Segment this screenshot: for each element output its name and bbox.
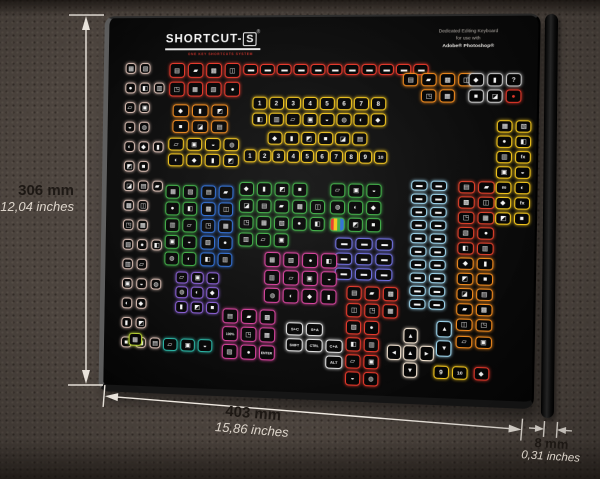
keyboard-key: ▰ [478,181,495,194]
keyboard-key: ◒ [125,122,136,133]
keyboard-key: ▥ [238,232,253,246]
keyboard-key: ◩ [495,212,511,225]
keyboard-key: ◐ [514,182,530,195]
keyboard-key: ◳ [169,82,185,97]
keyboard-key: 5 [301,150,314,163]
keyboard-key: ▥ [165,218,180,232]
keyboard-key: ▣ [180,338,195,351]
keyboard-key: ◳ [458,212,475,225]
keyboard-key: ▮ [487,73,503,86]
keyboard-key: ▰ [152,181,163,192]
keyboard-key: S+A [306,323,323,337]
keyboard-key: ◩ [136,317,147,328]
keyboard-key: ▧ [206,82,222,97]
keyboard-key: S+C [286,322,303,336]
keyboard-key: ◩ [223,154,239,167]
keyboard-key: ◳ [241,327,257,342]
keyboard-key: ▩ [458,196,475,209]
keyboard-key: ◆ [139,141,150,152]
keyboard-key: ▬ [409,299,426,310]
keyboard-key: ◆ [268,132,283,145]
keyboard-key: ▱ [286,113,301,126]
key-cluster-cyan-columns: ▬▬▬▬▬▬▬▬▬▬▬▬▬▬▬▬▬▬▬▬ [409,180,447,313]
keyboard-key: ▤ [257,199,272,213]
key-cluster-magenta-upper: ▦▧●◧▥▱▣◒◍◐◆▮ [264,252,337,308]
keyboard-key: C+A [325,339,342,353]
keyboard-key: ▩ [292,200,307,214]
keyboard-key: 3 [272,150,285,163]
keyboard-key: ▮ [121,317,132,328]
key-cluster-green-right: ▱▣◒◍◐◆◩■ [330,183,382,235]
keyboard-key: ● [125,83,136,94]
keyboard-key: ◐ [353,113,368,126]
keyboard-key: ▬ [310,64,325,75]
keyboard-key: ▰ [188,63,204,78]
description-line-2: for use with [431,35,507,39]
keyboard-key: ▤ [403,73,419,86]
keyboard-key: ◧ [346,337,361,352]
keyboard-key: ◒ [136,278,147,289]
keyboard-key: ◆ [371,113,386,126]
keyboard-key: ▲ [436,321,452,338]
keyboard-key: ▲ [403,328,418,344]
keyboard-key: ▦ [439,89,455,102]
brand-tagline: ONE KEY SHORTCUTS SYSTEM [188,52,237,56]
keyboard-key: ◒ [366,184,381,198]
keyboard-key: ▱ [330,183,345,197]
keyboard-key: ◫ [225,63,241,78]
keyboard-key: ▬ [411,180,428,190]
keyboard-key: ▬ [355,268,372,281]
keyboard-key: ◒ [198,339,213,352]
keyboard-key: ◍ [336,113,351,126]
key-cluster-lime-key: ▦ [129,333,143,349]
keyboard-key: ▣ [348,184,363,198]
keyboard-key: ◫ [346,303,361,318]
keyboard-key: ◆ [468,73,484,86]
keyboard-key: ◳ [123,219,134,230]
keyboard-key: 2 [269,97,284,110]
key-cluster-left-strip: ▦▧●◧▥▱▣◒◍◐◆▮◩■◪▤▰▩◫◳▦▧●◧▥▱▣◒◍◐◆▮◩■◪▤ [121,63,165,357]
keyboard-key: ▮ [257,182,272,196]
keyboard-key: ◪ [335,132,350,145]
keyboard-key: ▦ [382,304,397,319]
keyboard-key: ▬ [293,64,308,75]
key-cluster-top-gray-block: ◆▮?■◪● [468,73,522,106]
keyboard-key: ▣ [363,355,378,370]
keyboard-key: ▤ [476,288,493,301]
keyboard-key: ◪ [487,89,503,102]
keyboard-key: ◳ [476,319,493,332]
keyboard-key: ▬ [243,64,258,75]
keyboard-key: 8 [344,150,357,163]
keyboard-key: 7 [330,150,343,163]
product-dimension-diagram: SHORTCUT-S® ONE KEY SHORTCUTS SYSTEM Ded… [0,0,600,479]
keyboard-key: ▦ [259,327,275,342]
keyboard-key: ■ [514,213,530,226]
height-mm: 306 mm [0,183,74,200]
keyboard-key: 4 [303,97,318,110]
keyboard-key: ▤ [211,120,228,133]
key-cluster-right-red-column: ▤▰▩◫◳▦▧●◧▥ [457,181,495,258]
keyboard-key: ▧ [222,344,238,359]
keyboard-key: ● [224,82,240,97]
keyboard-key: ● [302,253,318,268]
keyboard-key: 4 [286,150,299,163]
key-cluster-teal-block: ▱▣◒ [163,338,212,355]
keyboard-key: ▰ [365,286,380,301]
keyboard-key: ◩ [191,301,204,313]
keyboard-key: ▬ [344,64,359,75]
key-cluster-magenta-lower: ▤▰▩100%◳▦▧●ENTER [222,308,276,363]
keyboard-key: ■ [468,89,484,102]
keyboard-key: 5 [320,97,335,110]
keyboard-key: ◒ [515,166,531,179]
keyboard-key: ◪ [239,199,254,213]
keyboard-key: 7 [354,97,369,110]
keyboard-key: ▦ [137,220,148,231]
keyboard-key: ◐ [182,252,197,266]
keyboard-key: ◪ [124,180,135,191]
key-cluster-menu-row: ▬▬▬▬▬▬▬▬▬▬▬ [243,64,429,78]
keyboard-key: ▲ [403,345,418,361]
keyboard-key: ● [218,236,233,250]
keyboard-key: ● [137,239,148,250]
keyboard-key: 6 [337,97,352,110]
key-cluster-yellow-file-block: ▱▣◒◍◐◆▮◩ [168,138,239,170]
keyboard-key: ▮ [284,132,299,145]
keyboard-key: ▦ [264,252,280,267]
keyboard-key: ▬ [379,64,394,75]
keyboard-key: ■ [138,161,149,172]
keyboard-key: ◆ [301,289,317,304]
keyboard-key: ▬ [355,253,372,265]
keyboard-key: ● [496,136,512,148]
keyboard-key: ▮ [205,154,221,167]
keyboard-key: ◆ [495,197,511,210]
keyboard-key: ◒ [345,371,360,386]
keyboard-key: ● [165,201,180,215]
key-cluster-green-main: ◆▮◩■◪▤▰▩◫◳▦▧●◧▥▱▣ [238,182,325,251]
keyboard-key: ▦ [126,63,137,74]
keyboard-key: CTRL [306,339,323,353]
keyboard-key: ◧ [252,113,267,126]
keyboard-key: ▬ [335,268,352,280]
keyboard-key: ◒ [182,235,197,249]
keyboard-key: ▬ [375,253,392,266]
keyboard-key: ► [419,346,434,362]
keyboard-key: ▬ [409,286,426,297]
keyboard-key: ▮ [320,289,336,304]
key-cluster-right-orange-column: ◆▮◩■◪▤▰▩◫◳ [456,257,494,335]
description-line-3: Adobe® Photoshop® [428,42,509,47]
keyboard-key: ▣ [302,271,318,286]
key-cluster-green-grid: ▦▧●◧▥▱▣◒◍◐ [164,185,197,269]
brand-wordmark: SHORTCUT-S® [166,29,261,50]
keyboard-key: ◳ [421,89,437,102]
keyboard-key: ◍ [330,200,345,214]
brand-s-box: S [243,32,256,46]
keyboard-key: ▱ [168,138,184,151]
keyboard-key: ▬ [410,233,427,243]
keyboard-key: fx [515,151,531,163]
keyboard-key: ◧ [515,136,531,148]
keyboard-key: ● [477,227,494,240]
keyboard-key: ▱ [456,336,473,349]
keyboard-key: ▣ [191,272,204,284]
keyboard-key: 3 [286,97,301,110]
keyboard-key: ◐ [191,287,204,299]
keyboard-key: ◧ [151,239,162,250]
keyboard-key: ▬ [430,220,447,230]
keyboard-key: ▬ [430,207,447,217]
keyboard-key: ▥ [364,338,379,353]
width-dimension-label: 403 mm 15,86 inches [179,400,326,443]
keyboard-key: ◍ [223,138,239,151]
height-dimension-label: 306 mm 12,04 inches [0,183,74,214]
keyboard-key: ◆ [173,104,190,117]
keyboard-key: ▦ [129,333,143,346]
keyboard-side-view [541,14,558,418]
keyboard-key: ▮ [175,301,188,313]
brand-text: SHORTCUT- [166,31,243,45]
keyboard-key: ▣ [139,102,150,113]
keyboard-key: ▤ [201,185,216,199]
key-layer: ▦▧●◧▥▱▣◒◍◐◆▮◩■◪▤▰▩◫◳▦▧●◧▥▱▣◒◍◐◆▮◩■◪▤▤▰▩◫… [109,16,538,19]
keyboard-key: ▮ [153,141,164,152]
keyboard-key: 6 [315,150,328,163]
keyboard-key: ▼ [436,340,452,357]
keyboard-key: ◧ [321,253,337,268]
keyboard-key: ▧ [346,320,361,335]
keyboard-key: ▧ [457,227,474,240]
keyboard-key: ▬ [375,269,392,282]
keyboard-key: ◪ [456,288,473,301]
keyboard-key: ▬ [430,194,447,204]
keyboard-key: ▤ [222,308,238,323]
description-line-1: Dedicated Editing Keyboard [431,28,507,32]
keyboard-key: ◍ [175,286,188,298]
keyboard-key: ◐ [348,201,363,215]
keyboard-key: ◩ [301,132,316,145]
keyboard-key: ◍ [151,279,162,290]
keyboard-key: ▣ [187,138,203,151]
keyboard-key: ▮ [192,104,209,117]
keyboard-key: ? [506,73,522,86]
keyboard-key: 9 [433,365,449,379]
keyboard-key: ▬ [429,286,446,297]
keyboard-key: ▱ [176,271,189,283]
keyboard-key: ▧ [140,63,151,74]
key-cluster-number-row-2: 12345678910 [244,149,387,167]
keyboard-key: ◆ [239,182,254,196]
keyboard-key: ▬ [429,260,446,271]
brand-logo: SHORTCUT-S® ONE KEY SHORTCUTS SYSTEM [154,29,271,61]
keyboard-key: ◆ [136,298,147,309]
key-cluster-purple-block: ▱▣◒◍◐◆▮◩■ [175,271,219,317]
keyboard-key: ▬ [429,247,446,258]
keyboard-key: ▦ [218,219,233,233]
keyboard-key: 9 [359,150,372,163]
keyboard-key: ▱ [283,270,299,285]
keyboard-key: ■ [292,183,307,197]
keyboard-key: ▦ [166,185,181,199]
keyboard-key [330,217,345,231]
keyboard-key: ▣ [496,166,512,178]
keyboard-key: ▱ [345,354,360,369]
keyboard-key: ▰ [241,309,257,324]
keyboard-key: ● [292,217,307,231]
keyboard-key: ◧ [200,252,215,266]
keyboard-key: ● [364,321,379,336]
keyboard-key: ▣ [302,113,317,126]
keyboard-key: ▤ [352,132,367,145]
keyboard-key: ▰ [421,73,437,86]
keyboard-key: ◧ [140,83,151,94]
keyboard-key: ▣ [122,278,133,289]
keyboard-key: ▩ [201,202,216,216]
keyboard-key: ◧ [457,242,474,255]
keyboard-key: ▥ [477,243,494,256]
keyboard-key: ▱ [163,338,178,351]
keyboard-key: ▤ [169,63,185,78]
keyboard-key: ▧ [123,239,134,250]
keyboard-key: ▬ [431,181,448,191]
keyboard-key: 100% [222,326,238,341]
keyboard-key: ▤ [138,180,149,191]
keyboard-key: ▣ [165,235,180,249]
keyboard-key: ◐ [283,288,299,303]
keyboard-key: ▤ [150,337,161,348]
keyboard-key: ▧ [183,185,198,199]
keyboard-key: ● [240,344,256,359]
keyboard-key: ▩ [123,200,134,211]
keyboard-key: ▥ [496,151,512,163]
keyboard-key: ▱ [125,102,136,113]
keyboard-key: ■ [318,132,333,145]
keyboard-key: ▬ [409,272,426,283]
keyboard-key: ▰ [274,199,289,213]
keyboard-key: ▩ [206,63,222,78]
keyboard-key: ◍ [264,288,280,303]
keyboard-key: ▧ [200,236,215,250]
keyboard-key: ▬ [335,237,352,249]
keyboard-key: ◧ [310,217,325,231]
keyboard-key: ▬ [429,273,446,284]
keyboard-key: ▣ [475,336,492,349]
keyboard-key: ◳ [239,216,254,230]
keyboard-key: 8 [371,97,386,110]
keyboard-key: ▬ [260,64,275,75]
keyboard-key: ▤ [346,286,361,300]
product-description: Dedicated Editing Keyboard for use with … [403,28,534,51]
key-cluster-right-orange-pair: ▱▣ [456,336,493,353]
keyboard-key: ◆ [474,367,490,381]
keyboard-key: ▦ [477,212,494,225]
keyboard-key: ◩ [124,161,135,172]
keyboard-key: ◳ [201,219,216,233]
key-cluster-cyan-arrow-keys: ▲▼ [436,321,452,360]
keyboard-key: ◫ [138,200,149,211]
registered-mark: ® [256,29,260,35]
keyboard-key: ▬ [376,238,393,250]
keyboard-key: ▮ [477,258,494,271]
keyboard-key: ◍ [139,122,150,133]
keyboard-key: ◆ [206,287,219,299]
keyboard-key: ● [506,90,522,103]
keyboard-key: ENTER [259,345,275,360]
keyboard-key: ▼ [403,362,418,378]
keyboard-key: ◩ [457,273,474,286]
keyboard-key: ■ [476,273,493,286]
keyboard-key: ▱ [182,218,197,232]
keyboard-key: 2 [258,149,271,162]
keyboard-key: ▬ [410,259,427,270]
keyboard-key: ▬ [410,246,427,256]
keyboard-key: ▬ [361,64,376,75]
keyboard-key: ◆ [366,201,381,215]
keyboard-key: ▦ [256,216,271,230]
keyboard-key: ▩ [383,287,398,302]
keyboard-key: ▦ [187,82,203,97]
keyboard-key: ◍ [363,372,378,387]
keyboard-key: ▩ [440,73,456,86]
height-inches: 12,04 inches [0,200,74,215]
keyboard-key: 1 [244,149,257,162]
keyboard-key: ◫ [218,202,233,216]
keyboard-key: ▱ [137,259,148,270]
keyboard-key: ▬ [277,64,292,75]
keyboard-front-view: SHORTCUT-S® ONE KEY SHORTCUTS SYSTEM Ded… [98,13,540,409]
keyboard-key: ◒ [319,113,334,126]
keyboard-key: ◫ [310,200,325,214]
keyboard-key: ◆ [186,154,202,167]
keyboard-key: ▬ [327,64,342,75]
keyboard-key: fx [514,197,530,210]
keyboard-key: ▬ [411,207,428,217]
keyboard-key: ◒ [321,271,337,286]
keyboard-key: ◫ [478,197,495,210]
keyboard-key: ▱ [256,233,271,247]
keyboard-key: ▥ [269,113,284,126]
keyboard-key: ▥ [154,83,165,94]
keyboard-key: ◩ [211,105,228,118]
keyboard-key: ALT [325,355,342,369]
keyboard-key: ▰ [219,186,234,200]
keyboard-key: ▥ [217,253,232,267]
keyboard-key: ◩ [275,182,290,196]
keyboard-key: ◒ [205,138,221,151]
keyboard-key: SHIFT [286,338,303,352]
keyboard-key: ■ [206,302,219,314]
depth-dimension-label: 8 mm 0,31 inches [511,435,591,467]
keyboard-key: ▥ [264,270,280,285]
keyboard-key: ▩ [476,304,493,317]
keyboard-key: ▧ [283,252,299,267]
keyboard-key: ▬ [411,194,428,204]
keyboard-key: 10 [452,366,468,380]
keyboard-key: ◐ [122,297,133,308]
key-cluster-yellow-fx-column: ▦▧●◧▥fx▣◒∞◐◆fx◩■ [495,120,531,228]
keyboard-key: ▣ [274,233,289,247]
key-cluster-orange-block: ◆▮◩■◪▤ [172,104,228,136]
key-cluster-bottom-red-key: ◆ [474,367,490,384]
keyboard-key: ▥ [122,258,133,269]
keyboard-key: ◐ [168,153,184,166]
keyboard-key: ◐ [124,141,135,152]
key-cluster-violet-block: ▬▬▬▬▬▬▬▬▬ [335,237,393,284]
keyboard-key: ◆ [457,257,474,270]
